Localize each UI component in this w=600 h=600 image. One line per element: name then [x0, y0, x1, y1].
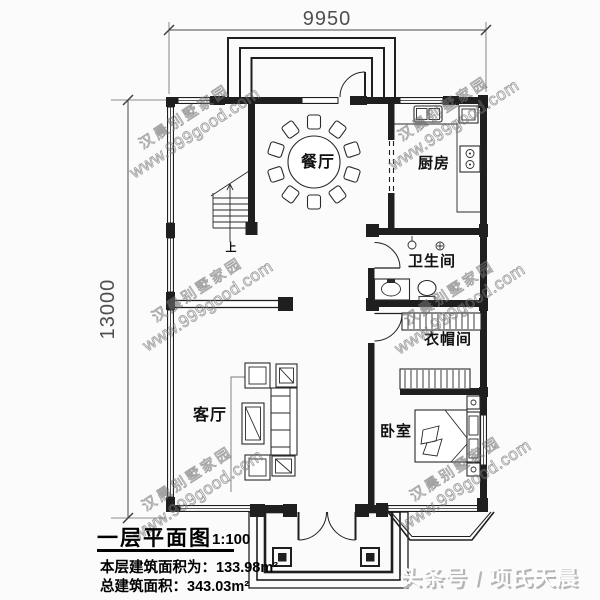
sofa-three-seat — [271, 388, 297, 455]
total-area-text: 总建筑面积：343.03m² — [100, 577, 249, 595]
floor-plan-page: 餐厅 厨房 卫生间 衣帽间 客厅 卧室 上 9950 13000 汉晨别墅家园 … — [0, 0, 600, 600]
kitchen-stove — [460, 146, 480, 172]
nightstand — [467, 396, 480, 409]
porch-column-left — [278, 553, 287, 562]
terrace-sill — [302, 98, 338, 104]
side-table — [276, 364, 297, 387]
coffee-table — [242, 403, 264, 444]
armchair — [245, 363, 270, 388]
floor-plan-svg: 餐厅 厨房 卫生间 衣帽间 客厅 卧室 上 9950 13000 汉晨别墅家园 … — [0, 0, 600, 600]
bathroom-label: 卫生间 — [408, 252, 456, 270]
stair-wall — [248, 104, 255, 225]
bedroom-label: 卧室 — [380, 422, 412, 440]
height-dimension: 13000 — [97, 279, 119, 340]
plan-title: 一层平面图 — [97, 527, 212, 550]
title-underline — [97, 549, 234, 552]
dining-room-label: 餐厅 — [300, 152, 335, 171]
side-table — [272, 456, 295, 476]
kitchen-label: 厨房 — [418, 154, 450, 172]
banner-text: 头条号 / 项氏天晨 — [400, 565, 578, 590]
washbasin — [375, 279, 410, 300]
source-banner: 头条号 / 项氏天晨 头条号 / 项氏天晨 — [400, 565, 581, 592]
floor-area-text: 本层建筑面积为：133.98m² — [100, 558, 278, 576]
porch-column-right — [366, 553, 375, 562]
width-dimension: 9950 — [303, 8, 352, 30]
plan-scale: 1:100 — [212, 531, 250, 548]
living-room-label: 客厅 — [193, 405, 227, 424]
stairs-up-label: 上 — [226, 240, 237, 254]
